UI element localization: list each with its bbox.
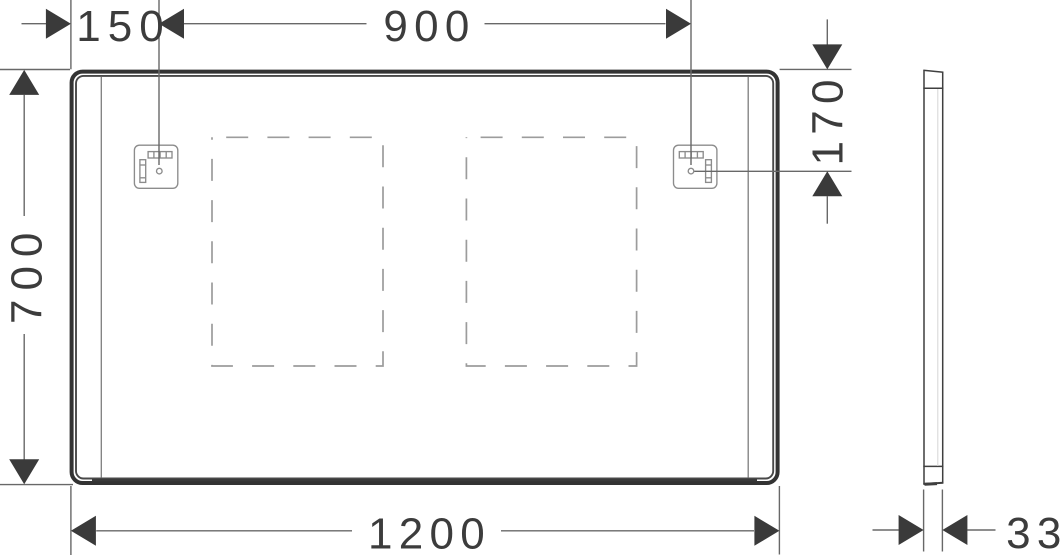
- svg-text:900: 900: [383, 2, 475, 51]
- svg-text:33: 33: [1006, 509, 1061, 558]
- svg-text:1200: 1200: [368, 510, 491, 558]
- svg-text:700: 700: [2, 224, 51, 324]
- svg-text:150: 150: [76, 2, 170, 51]
- svg-text:170: 170: [803, 73, 852, 165]
